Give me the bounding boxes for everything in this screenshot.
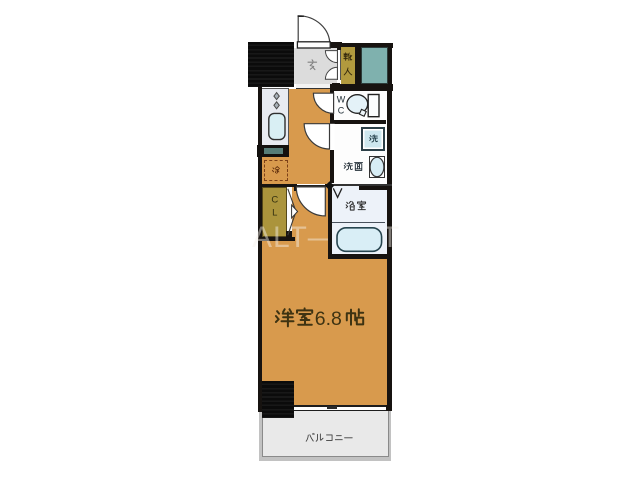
svg-text:6.8: 6.8 [315, 308, 342, 330]
